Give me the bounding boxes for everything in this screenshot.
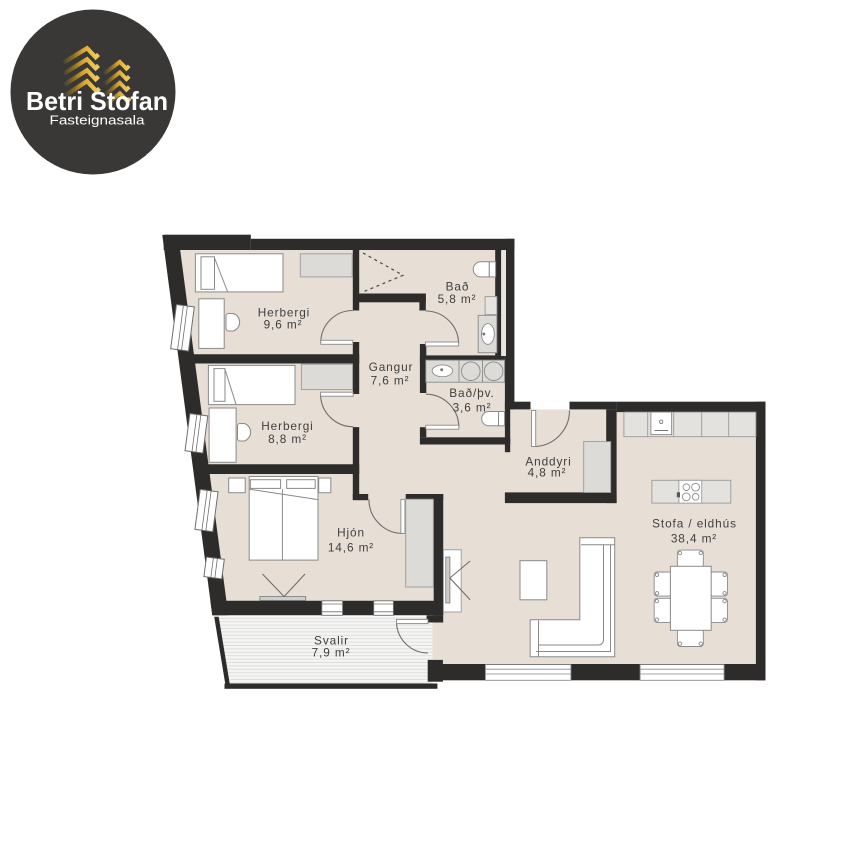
svg-text:Fasteignasala: Fasteignasala <box>50 113 145 127</box>
svg-text:7,6 m²: 7,6 m² <box>371 374 410 388</box>
svg-text:5,8 m²: 5,8 m² <box>438 292 477 306</box>
svg-text:Gangur: Gangur <box>369 360 414 374</box>
svg-text:Stofa / eldhús: Stofa / eldhús <box>652 517 737 531</box>
svg-text:Bað/þv.: Bað/þv. <box>449 386 494 400</box>
svg-text:4,8 m²: 4,8 m² <box>528 466 567 480</box>
svg-text:3,6 m²: 3,6 m² <box>453 400 492 414</box>
svg-text:9,6 m²: 9,6 m² <box>264 318 303 332</box>
svg-text:7,9 m²: 7,9 m² <box>312 646 351 660</box>
svg-text:Hjón: Hjón <box>337 526 365 540</box>
svg-text:38,4 m²: 38,4 m² <box>671 532 717 546</box>
svg-text:14,6 m²: 14,6 m² <box>328 541 374 555</box>
svg-text:Betri Stofan: Betri Stofan <box>26 86 168 116</box>
svg-text:8,8 m²: 8,8 m² <box>268 432 307 446</box>
